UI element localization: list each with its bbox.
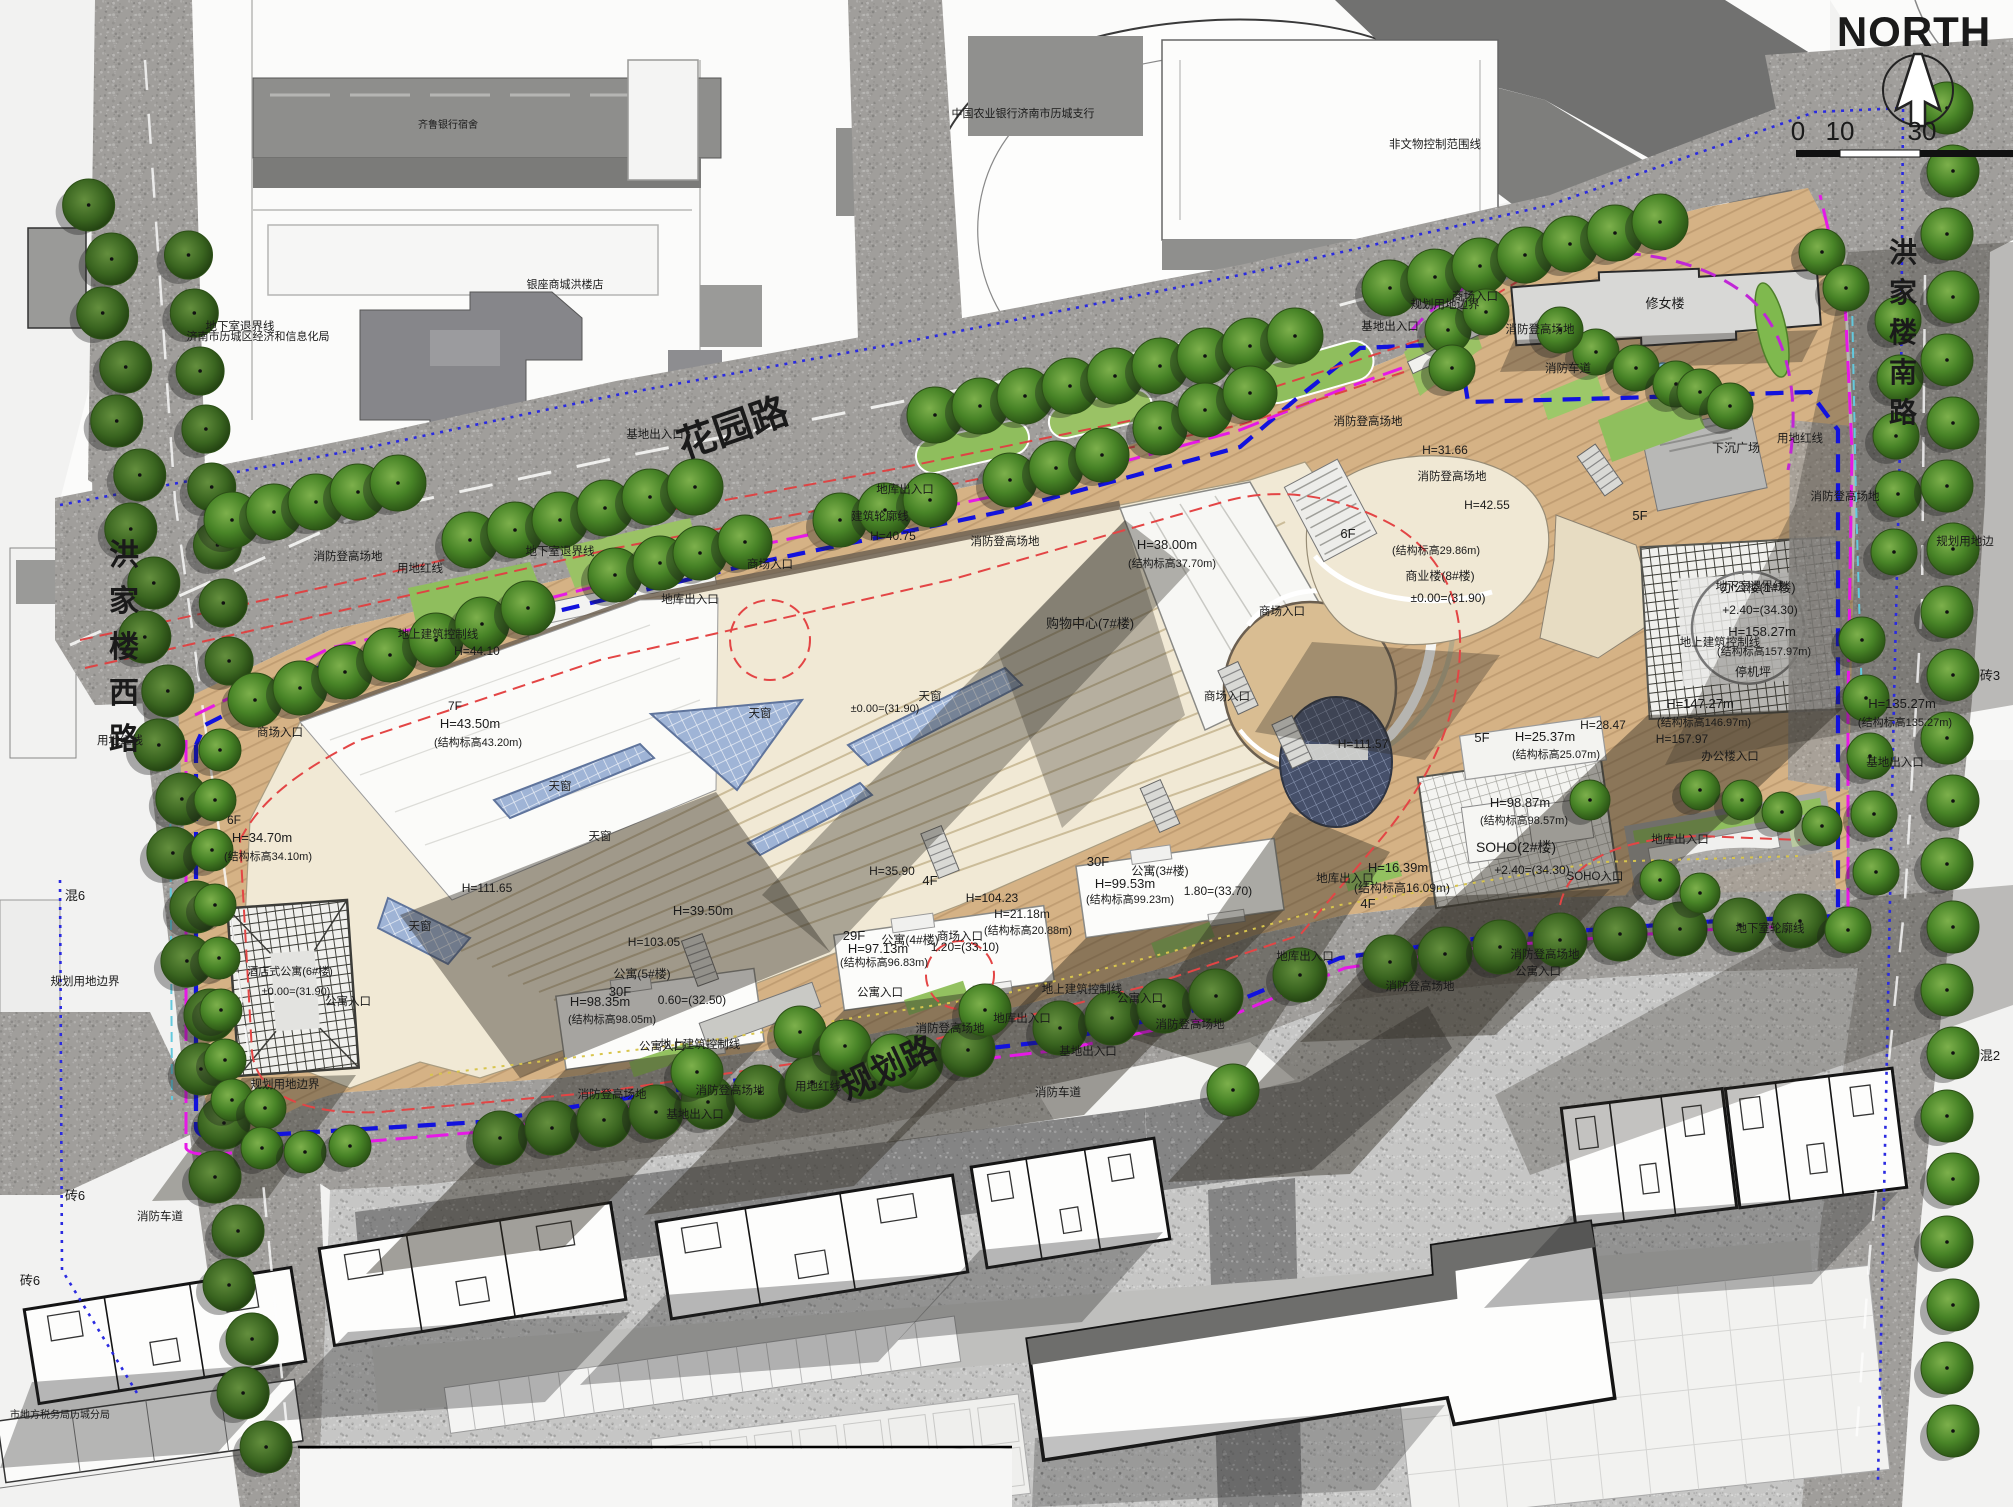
svg-text:地下室退界线: 地下室退界线 xyxy=(1716,579,1785,593)
svg-text:修女楼: 修女楼 xyxy=(1645,296,1684,311)
svg-text:基地出入口: 基地出入口 xyxy=(1361,319,1419,333)
svg-text:H=103.05: H=103.05 xyxy=(628,935,681,949)
svg-text:中国农业银行济南市历城支行: 中国农业银行济南市历城支行 xyxy=(952,106,1095,120)
svg-text:天窗: 天窗 xyxy=(919,689,942,703)
svg-text:银座商城洪楼店: 银座商城洪楼店 xyxy=(527,277,604,291)
svg-text:+2.40=(34.30): +2.40=(34.30) xyxy=(1722,603,1797,617)
svg-text:6F: 6F xyxy=(227,813,241,827)
svg-text:地库出入口: 地库出入口 xyxy=(1651,832,1709,846)
svg-text:H=104.23: H=104.23 xyxy=(966,891,1019,905)
svg-text:家: 家 xyxy=(1889,276,1917,308)
svg-text:用地红线: 用地红线 xyxy=(1777,431,1823,445)
svg-text:H=34.70m: H=34.70m xyxy=(232,830,292,845)
svg-text:公寓(5#楼): 公寓(5#楼) xyxy=(613,966,670,981)
svg-text:停机坪: 停机坪 xyxy=(1735,664,1771,679)
svg-text:非文物控制范围线: 非文物控制范围线 xyxy=(1389,137,1481,151)
svg-text:公寓入口: 公寓入口 xyxy=(639,1039,685,1053)
svg-text:消防登高场地: 消防登高场地 xyxy=(1511,947,1580,961)
svg-text:地下室退界线: 地下室退界线 xyxy=(526,544,595,558)
svg-text:消防登高场地: 消防登高场地 xyxy=(1811,489,1880,503)
svg-text:H=111.57: H=111.57 xyxy=(1338,737,1389,751)
svg-text:SOHO入口: SOHO入口 xyxy=(1567,870,1624,883)
svg-text:公寓入口: 公寓入口 xyxy=(1515,964,1561,978)
svg-text:H=97.13m: H=97.13m xyxy=(848,941,908,956)
svg-text:消防登高场地: 消防登高场地 xyxy=(971,534,1040,548)
svg-text:30F: 30F xyxy=(1087,854,1109,869)
svg-text:商业楼(8#楼): 商业楼(8#楼) xyxy=(1405,568,1474,583)
svg-text:用地红线: 用地红线 xyxy=(397,561,443,575)
svg-text:H=98.87m: H=98.87m xyxy=(1490,795,1550,810)
svg-text:天窗: 天窗 xyxy=(589,829,612,843)
svg-text:地下室轮廓线: 地下室轮廓线 xyxy=(1736,921,1805,935)
svg-text:购物中心(7#楼): 购物中心(7#楼) xyxy=(1046,616,1134,631)
svg-text:5F: 5F xyxy=(1632,508,1647,523)
svg-text:±0.00=(31.90): ±0.00=(31.90) xyxy=(851,703,920,715)
svg-text:公寓入口: 公寓入口 xyxy=(1117,991,1163,1005)
svg-text:6F: 6F xyxy=(1340,526,1355,541)
svg-text:4F: 4F xyxy=(1360,896,1375,911)
svg-text:H=21.18m: H=21.18m xyxy=(994,907,1050,921)
svg-text:商场入口: 商场入口 xyxy=(257,725,303,739)
svg-text:0.60=(32.50): 0.60=(32.50) xyxy=(658,993,726,1007)
svg-text:砖6: 砖6 xyxy=(20,1273,40,1288)
svg-text:规划用地边界: 规划用地边界 xyxy=(1411,297,1480,311)
svg-text:H=111.65: H=111.65 xyxy=(462,881,513,895)
svg-text:7F: 7F xyxy=(448,699,462,713)
svg-text:建筑轮廓线: 建筑轮廓线 xyxy=(851,509,909,523)
svg-text:下沉广场: 下沉广场 xyxy=(1712,441,1760,455)
svg-text:天窗: 天窗 xyxy=(749,706,772,720)
svg-text:地上建筑控制线: 地上建筑控制线 xyxy=(1680,635,1761,649)
svg-text:公寓入口: 公寓入口 xyxy=(857,985,903,999)
svg-text:H=157.97: H=157.97 xyxy=(1656,732,1709,746)
svg-text:路: 路 xyxy=(1889,397,1918,428)
svg-text:消防车道: 消防车道 xyxy=(1035,1085,1081,1099)
svg-text:地库出入口: 地库出入口 xyxy=(1276,949,1334,963)
svg-text:商场入口: 商场入口 xyxy=(937,929,983,943)
svg-text:(结构标高25.07m): (结构标高25.07m) xyxy=(1512,747,1600,761)
svg-text:南: 南 xyxy=(1889,357,1917,388)
svg-text:0: 0 xyxy=(1791,116,1805,146)
svg-text:(结构标高37.70m): (结构标高37.70m) xyxy=(1128,556,1216,570)
svg-text:消防登高场地: 消防登高场地 xyxy=(1334,414,1403,428)
svg-text:砖3: 砖3 xyxy=(1980,668,2000,683)
svg-text:30: 30 xyxy=(1908,116,1937,146)
svg-text:公寓入口: 公寓入口 xyxy=(325,994,371,1008)
svg-text:地库出入口: 地库出入口 xyxy=(1316,871,1374,885)
svg-text:西: 西 xyxy=(109,677,139,710)
svg-text:消防登高场地: 消防登高场地 xyxy=(916,1021,985,1035)
svg-text:±0.00=(31.90): ±0.00=(31.90) xyxy=(1411,591,1486,605)
svg-text:消防登高场地: 消防登高场地 xyxy=(1386,979,1455,993)
svg-text:(结构标高146.97m): (结构标高146.97m) xyxy=(1657,715,1751,729)
svg-text:H=39.50m: H=39.50m xyxy=(673,903,733,918)
svg-text:(结构标高98.05m): (结构标高98.05m) xyxy=(568,1012,656,1026)
svg-text:地上建筑控制线: 地上建筑控制线 xyxy=(398,627,479,641)
svg-text:楼: 楼 xyxy=(109,631,139,664)
svg-text:1.80=(33.70): 1.80=(33.70) xyxy=(1184,884,1252,898)
svg-text:10: 10 xyxy=(1826,116,1855,146)
svg-text:消防登高场地: 消防登高场地 xyxy=(1418,469,1487,483)
svg-text:商场入口: 商场入口 xyxy=(747,557,793,571)
svg-text:基地出入口: 基地出入口 xyxy=(1059,1044,1117,1058)
svg-text:地库出入口: 地库出入口 xyxy=(876,482,934,496)
svg-text:SOHO(2#楼): SOHO(2#楼) xyxy=(1476,839,1556,855)
svg-text:H=38.00m: H=38.00m xyxy=(1137,537,1197,552)
svg-text:天窗: 天窗 xyxy=(549,779,572,793)
svg-text:H=31.66: H=31.66 xyxy=(1422,443,1468,457)
svg-text:H=25.37m: H=25.37m xyxy=(1515,729,1575,744)
svg-text:(结构标高99.23m): (结构标高99.23m) xyxy=(1086,892,1174,906)
svg-text:基地出入口: 基地出入口 xyxy=(1866,755,1924,769)
svg-text:消防车道: 消防车道 xyxy=(137,1209,183,1223)
svg-text:混6: 混6 xyxy=(65,888,85,903)
svg-text:H=147.27m: H=147.27m xyxy=(1666,696,1734,711)
svg-text:H=42.55: H=42.55 xyxy=(1464,498,1510,512)
svg-text:地库出入口: 地库出入口 xyxy=(993,1011,1051,1025)
svg-text:规划用地边界: 规划用地边界 xyxy=(51,974,120,988)
svg-text:消防车道: 消防车道 xyxy=(1545,361,1591,375)
svg-text:(结构标高34.10m): (结构标高34.10m) xyxy=(224,849,312,863)
svg-text:(结构标高20.88m): (结构标高20.88m) xyxy=(984,923,1072,937)
svg-text:用地红线: 用地红线 xyxy=(97,733,143,747)
svg-text:H=43.50m: H=43.50m xyxy=(440,716,500,731)
svg-text:5F: 5F xyxy=(1474,730,1489,745)
svg-text:砖6: 砖6 xyxy=(65,1188,85,1203)
svg-text:基地出入口: 基地出入口 xyxy=(626,427,684,441)
svg-text:酒店式公寓(6#楼): 酒店式公寓(6#楼) xyxy=(247,964,333,978)
svg-text:消防登高场地: 消防登高场地 xyxy=(314,549,383,563)
svg-text:H=40.75: H=40.75 xyxy=(870,529,916,543)
svg-text:天窗: 天窗 xyxy=(409,919,432,933)
svg-text:家: 家 xyxy=(109,585,139,618)
svg-text:基地出入口: 基地出入口 xyxy=(666,1107,724,1121)
svg-text:消防登高场地: 消防登高场地 xyxy=(696,1083,765,1097)
svg-text:H=28.47: H=28.47 xyxy=(1580,718,1626,732)
svg-text:H=135.27m: H=135.27m xyxy=(1868,696,1936,711)
svg-text:用地红线: 用地红线 xyxy=(795,1079,841,1093)
svg-text:齐鲁银行宿舍: 齐鲁银行宿舍 xyxy=(418,118,478,131)
svg-text:洪: 洪 xyxy=(109,539,139,572)
svg-text:(结构标高29.86m): (结构标高29.86m) xyxy=(1392,543,1480,557)
svg-text:地下室退界线: 地下室退界线 xyxy=(206,319,275,333)
svg-text:29F: 29F xyxy=(843,928,865,943)
svg-text:30F: 30F xyxy=(609,984,631,999)
svg-text:(结构标高135.27m): (结构标高135.27m) xyxy=(1858,715,1952,729)
svg-text:±0.00=(31.90): ±0.00=(31.90) xyxy=(262,986,331,998)
svg-text:市地方税务局历城分局: 市地方税务局历城分局 xyxy=(10,1408,110,1421)
svg-text:NORTH: NORTH xyxy=(1837,8,1991,55)
svg-text:洪: 洪 xyxy=(1889,237,1917,268)
svg-text:规划用地边界: 规划用地边界 xyxy=(251,1077,320,1091)
svg-text:(结构标高43.20m): (结构标高43.20m) xyxy=(434,735,522,749)
svg-text:H=44.10: H=44.10 xyxy=(454,644,500,658)
svg-text:地上建筑控制线: 地上建筑控制线 xyxy=(1042,982,1123,996)
svg-text:+2.40=(34.30): +2.40=(34.30) xyxy=(1494,863,1569,877)
svg-text:楼: 楼 xyxy=(1889,317,1917,348)
svg-text:(结构标高96.83m): (结构标高96.83m) xyxy=(840,955,928,969)
svg-text:H=99.53m: H=99.53m xyxy=(1095,876,1155,891)
svg-text:4F: 4F xyxy=(922,873,937,888)
svg-text:H=35.90: H=35.90 xyxy=(869,864,915,878)
svg-text:商场入口: 商场入口 xyxy=(1259,604,1305,618)
svg-text:混2: 混2 xyxy=(1980,1048,2000,1063)
svg-text:消防登高场地: 消防登高场地 xyxy=(1156,1017,1225,1031)
svg-text:办公楼入口: 办公楼入口 xyxy=(1701,749,1759,763)
svg-text:H=16.39m: H=16.39m xyxy=(1368,860,1428,875)
svg-text:(结构标高98.57m): (结构标高98.57m) xyxy=(1480,813,1568,827)
svg-text:规划用地边: 规划用地边 xyxy=(1936,534,1994,548)
svg-text:商场入口: 商场入口 xyxy=(1204,689,1250,703)
svg-text:消防登高场地: 消防登高场地 xyxy=(1506,322,1575,336)
svg-text:地库出入口: 地库出入口 xyxy=(661,592,719,606)
svg-text:消防登高场地: 消防登高场地 xyxy=(578,1087,647,1101)
